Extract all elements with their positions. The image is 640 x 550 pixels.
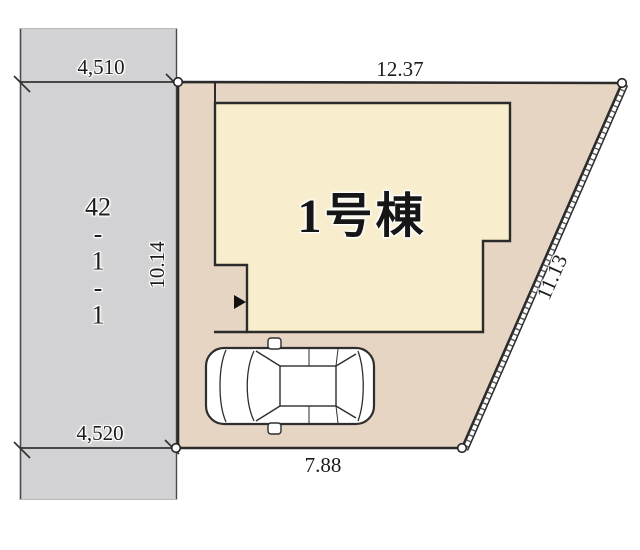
site-plan: 4,510 12.37 42 - 1 - 1 10.14 1号棟 11.13 4…: [0, 0, 640, 550]
dimension-road-bottom: 4,520: [76, 422, 123, 444]
dimension-lot-top: 12.37: [376, 58, 423, 80]
corner-marker-icon: [458, 444, 467, 453]
car-mirror-bottom: [268, 423, 281, 434]
building-name: 1号棟: [297, 192, 426, 242]
corner-marker-icon: [618, 79, 627, 88]
dimension-lot-bottom: 7.88: [305, 454, 342, 476]
corner-marker-icon: [172, 444, 181, 453]
road-parcel-number: 42 - 1 - 1: [85, 194, 111, 329]
car-body: [206, 348, 374, 424]
dimension-lot-left: 10.14: [146, 241, 168, 288]
car-mirror-top: [268, 338, 281, 349]
dimension-road-top: 4,510: [77, 56, 124, 78]
car-icon: [206, 338, 374, 434]
corner-marker-icon: [174, 78, 183, 87]
